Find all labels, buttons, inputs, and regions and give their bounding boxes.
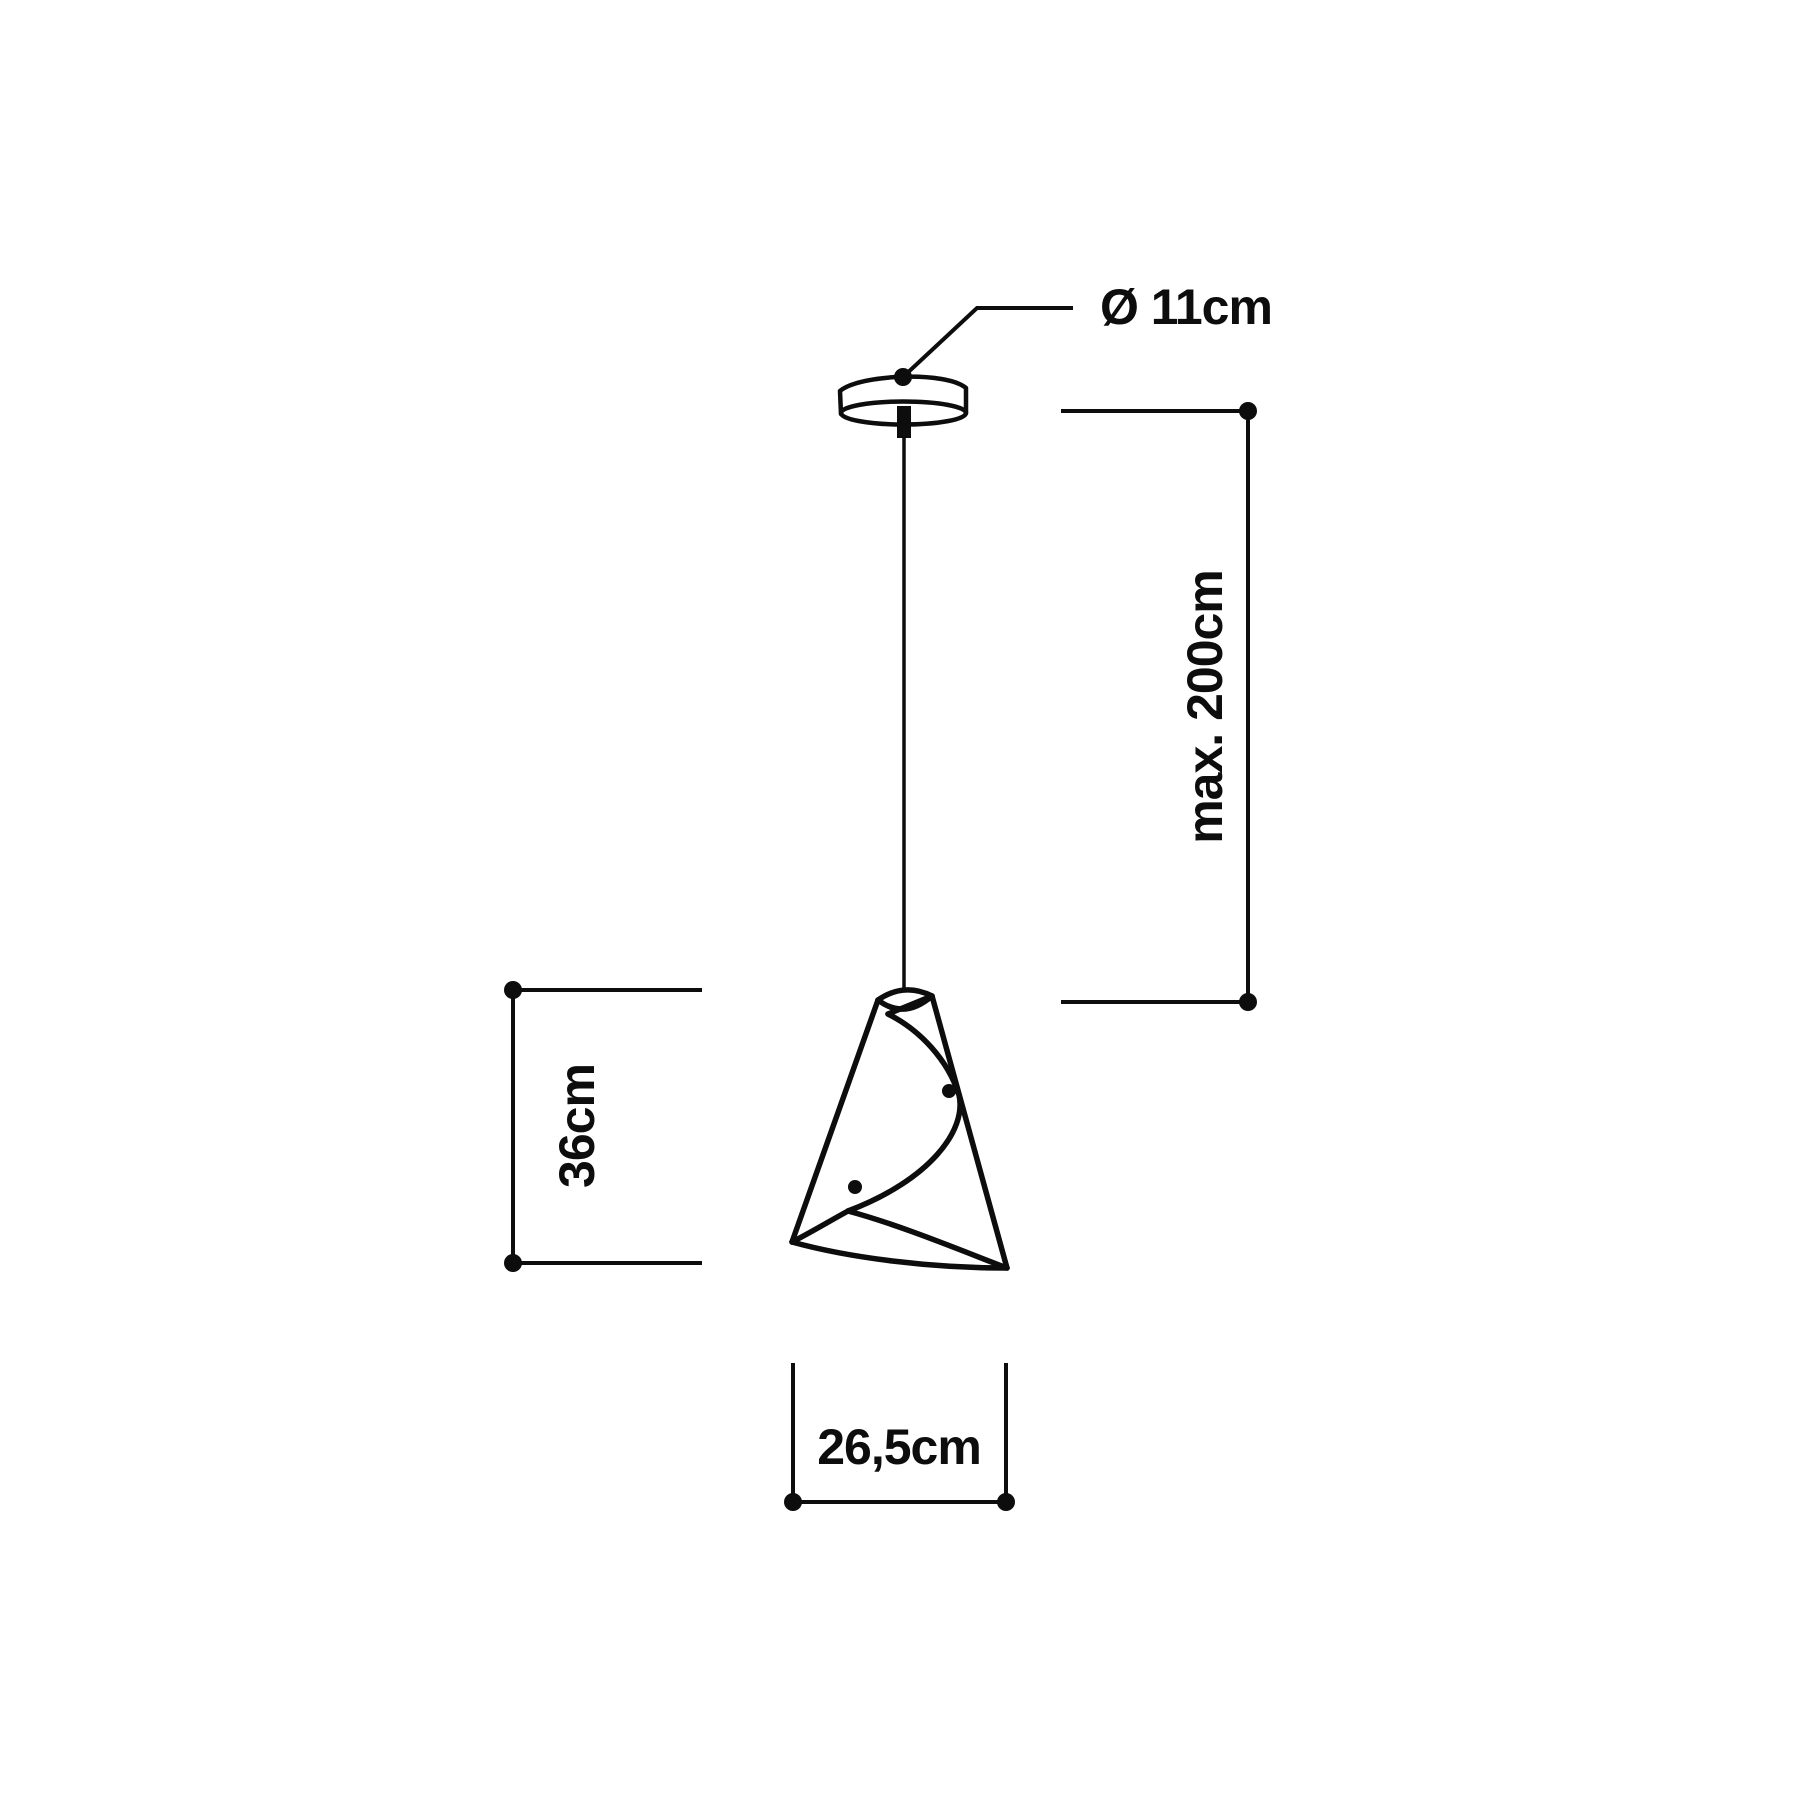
leader-line [903,308,1073,377]
pendant-lamp-diagram: max. 200cm 36cm 26,5cm Ø 11cm [0,0,1800,1800]
dimension-suspension-length: max. 200cm [1061,402,1257,1011]
shade-right-edge [932,996,1007,1268]
suspension-length-label: max. 200cm [1177,570,1233,844]
cord-grip [897,406,911,438]
lampshade [792,990,1007,1268]
leader-anchor-dot [894,368,912,386]
dim-endpoint-dot [504,1254,522,1272]
canopy-diameter-label: Ø 11cm [1100,279,1272,335]
dimension-canopy-diameter: Ø 11cm [894,279,1272,386]
lamp-dimension-drawing: max. 200cm 36cm 26,5cm Ø 11cm [0,0,1800,1800]
shade-top-fold-edge [888,996,932,1014]
shade-height-label: 36cm [549,1064,605,1188]
dim-endpoint-dot [784,1493,802,1511]
shade-rivet-upper [942,1084,956,1098]
dimension-shade-width: 26,5cm [784,1363,1015,1511]
dim-endpoint-dot [1239,993,1257,1011]
shade-width-label: 26,5cm [817,1419,981,1475]
dim-endpoint-dot [504,981,522,999]
dim-endpoint-dot [1239,402,1257,420]
shade-rivet-lower [848,1180,862,1194]
dimension-shade-height: 36cm [504,981,702,1272]
dim-endpoint-dot [997,1493,1015,1511]
